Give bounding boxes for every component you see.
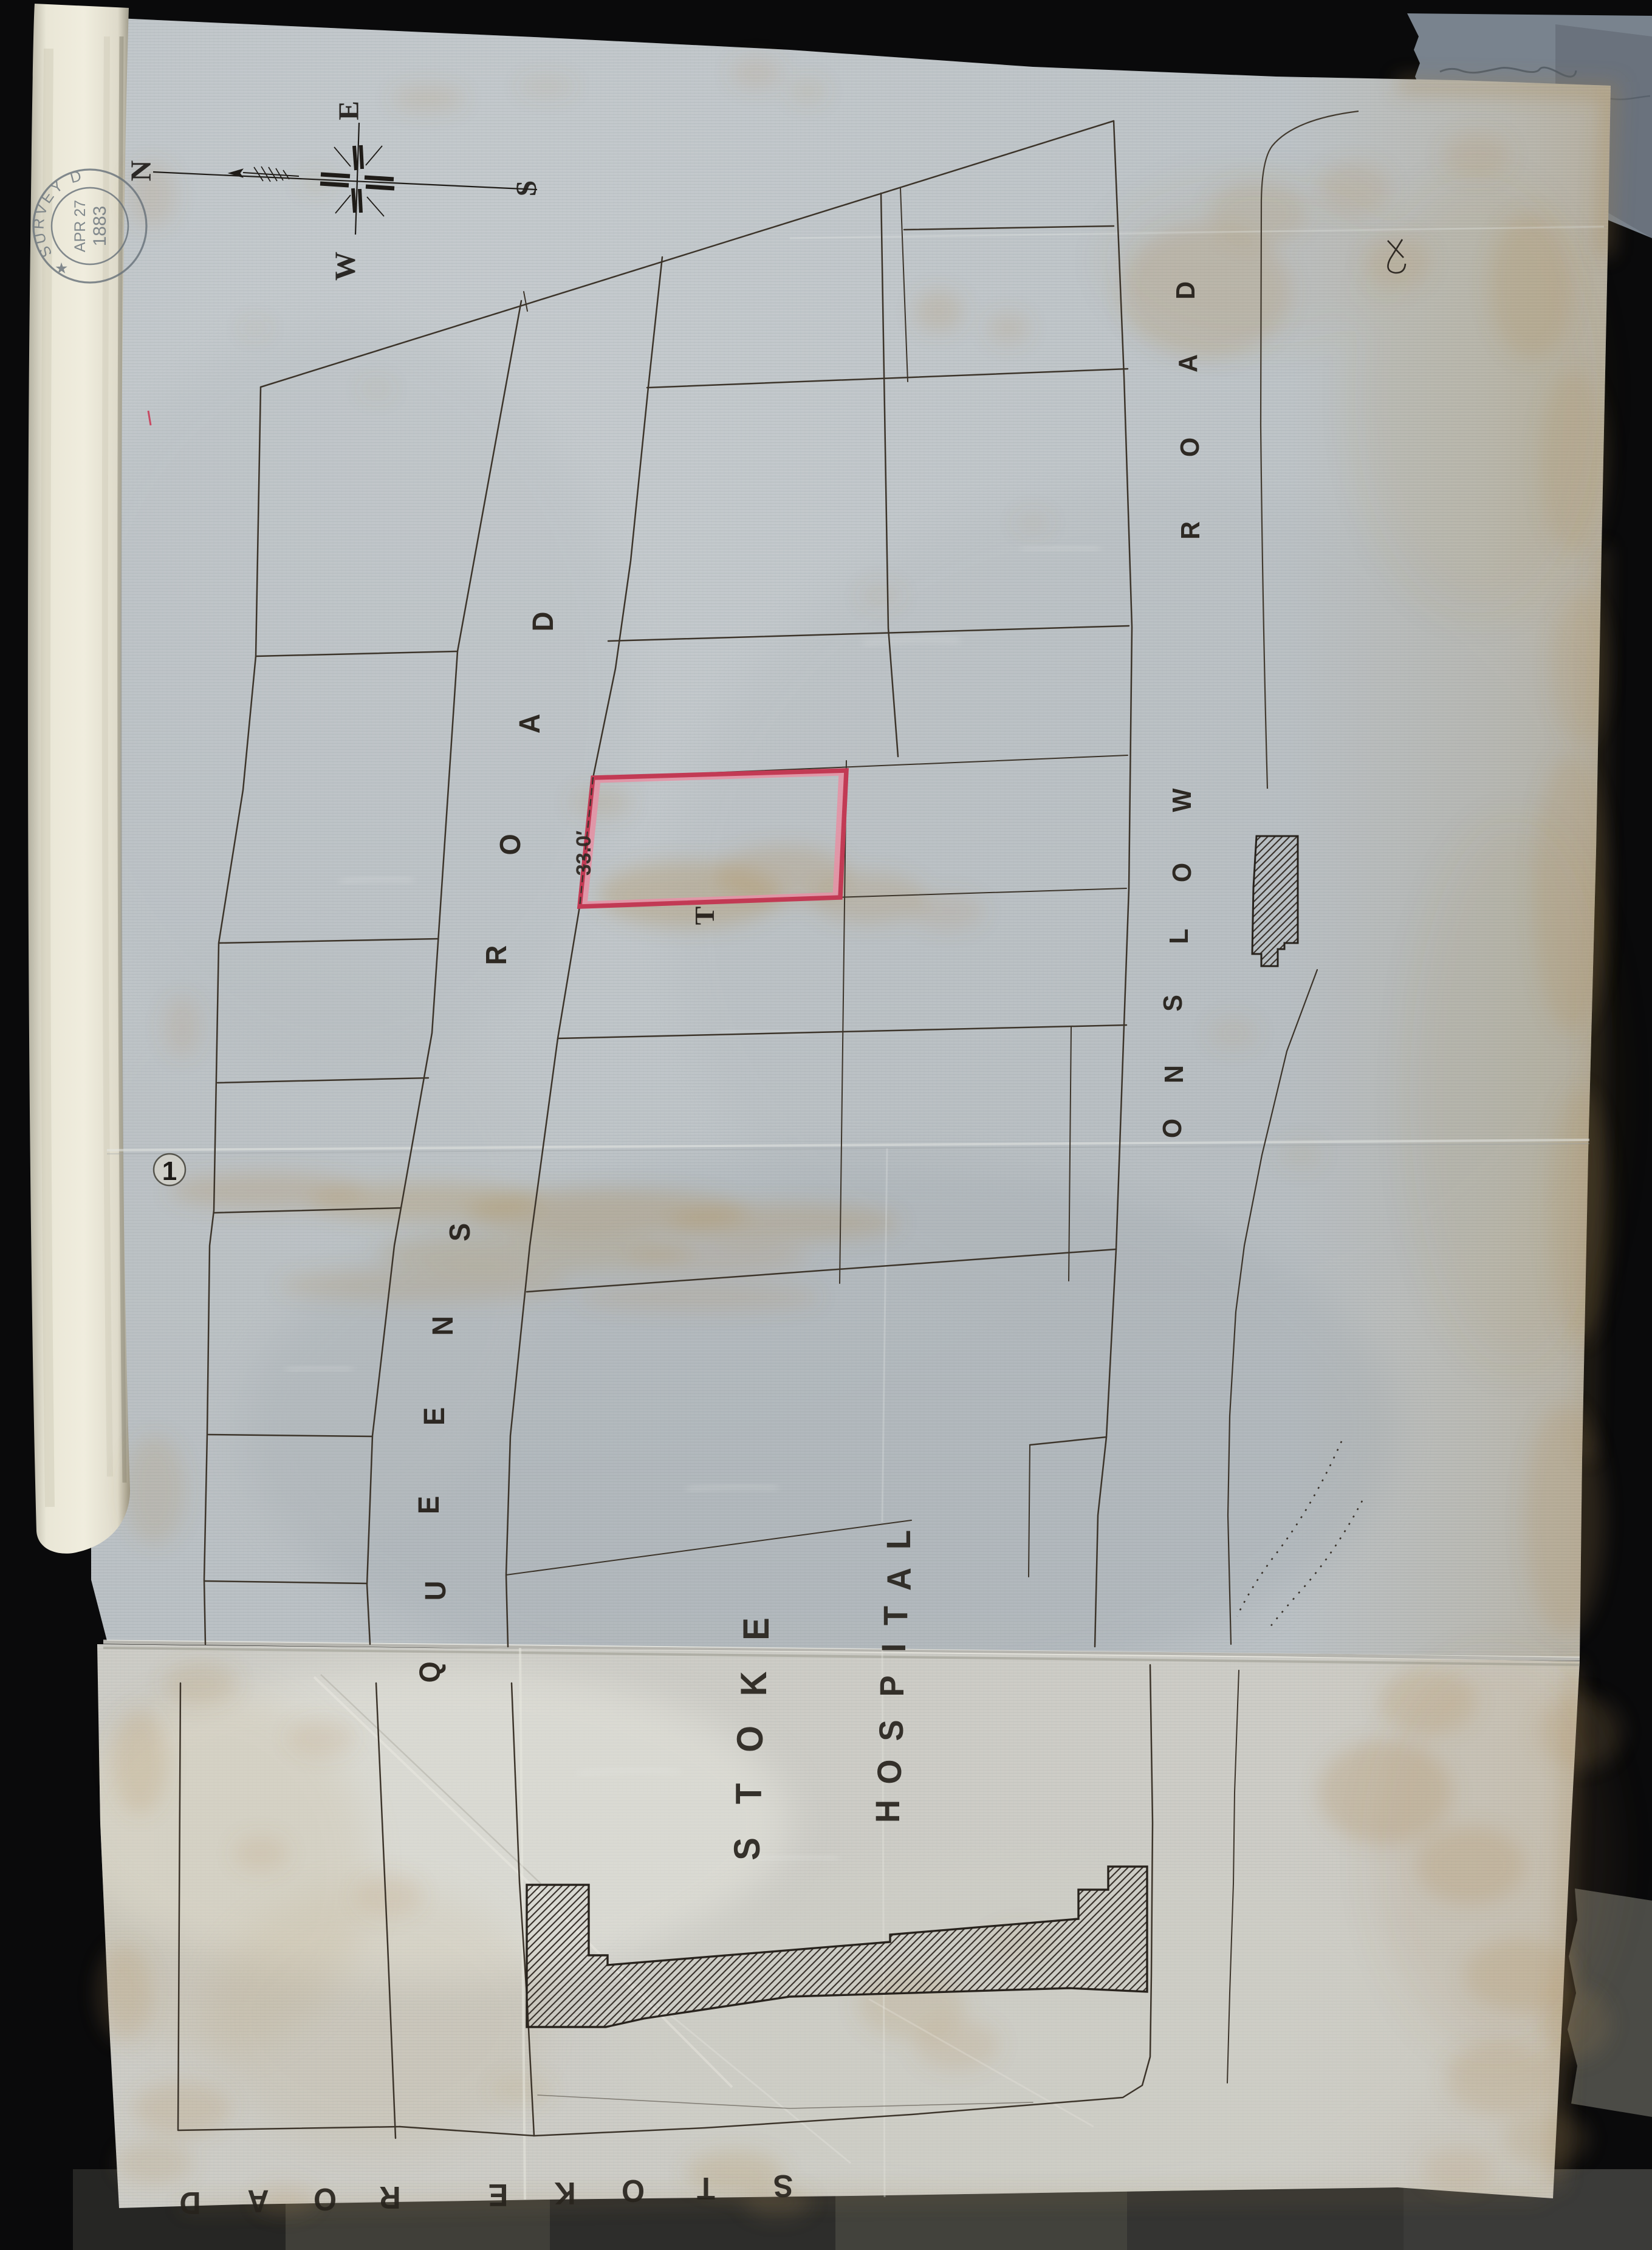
svg-text:O: O	[622, 2173, 645, 2209]
svg-text:A: A	[1173, 354, 1203, 372]
svg-text:U: U	[419, 1581, 452, 1601]
svg-text:T: T	[697, 2171, 715, 2207]
svg-text:L: L	[1164, 928, 1194, 944]
svg-text:S: S	[872, 1720, 911, 1741]
svg-text:E: E	[333, 101, 365, 120]
svg-text:K: K	[733, 1672, 774, 1696]
svg-text:R: R	[480, 945, 513, 966]
svg-text:N: N	[427, 1316, 459, 1336]
svg-text:S: S	[773, 2169, 793, 2204]
svg-text:L: L	[880, 1530, 918, 1549]
svg-text:N: N	[125, 160, 157, 181]
svg-text:O: O	[730, 1726, 770, 1752]
svg-text:33.0′: 33.0′	[572, 831, 595, 876]
svg-text:I: I	[875, 1644, 913, 1653]
svg-text:O: O	[494, 834, 527, 855]
svg-text:W: W	[329, 252, 362, 281]
svg-text:R: R	[1176, 521, 1205, 540]
svg-text:D: D	[1171, 281, 1201, 300]
svg-text:S: S	[727, 1837, 767, 1861]
svg-text:1: 1	[162, 1156, 177, 1186]
svg-text:A: A	[880, 1568, 919, 1591]
svg-text:K: K	[554, 2176, 575, 2212]
svg-text:N: N	[1159, 1065, 1189, 1083]
svg-text:A: A	[513, 714, 546, 734]
svg-text:A: A	[247, 2184, 269, 2220]
svg-text:O: O	[1175, 437, 1205, 457]
svg-text:O: O	[871, 1760, 909, 1785]
svg-text:E: E	[488, 2178, 509, 2214]
svg-text:O: O	[1157, 1119, 1187, 1138]
svg-text:D: D	[179, 2186, 201, 2221]
svg-text:E: E	[736, 1617, 776, 1641]
svg-text:T: T	[689, 907, 720, 925]
svg-text:W: W	[1167, 788, 1197, 812]
svg-text:E: E	[413, 1496, 445, 1514]
svg-text:H: H	[869, 1800, 907, 1823]
svg-text:T: T	[877, 1606, 915, 1625]
svg-text:S: S	[444, 1223, 476, 1241]
svg-text:T: T	[728, 1783, 769, 1804]
svg-text:APR 27: APR 27	[72, 200, 89, 252]
svg-text:S: S	[510, 180, 543, 197]
svg-text:1883: 1883	[90, 206, 110, 247]
svg-text:E: E	[418, 1407, 451, 1425]
svg-text:P: P	[873, 1675, 911, 1696]
svg-text:O: O	[1167, 863, 1197, 882]
svg-text:S: S	[1158, 995, 1188, 1012]
svg-text:O: O	[314, 2182, 337, 2218]
svg-text:R: R	[379, 2180, 400, 2216]
svg-text:Q: Q	[414, 1661, 447, 1682]
svg-text:D: D	[527, 612, 560, 632]
